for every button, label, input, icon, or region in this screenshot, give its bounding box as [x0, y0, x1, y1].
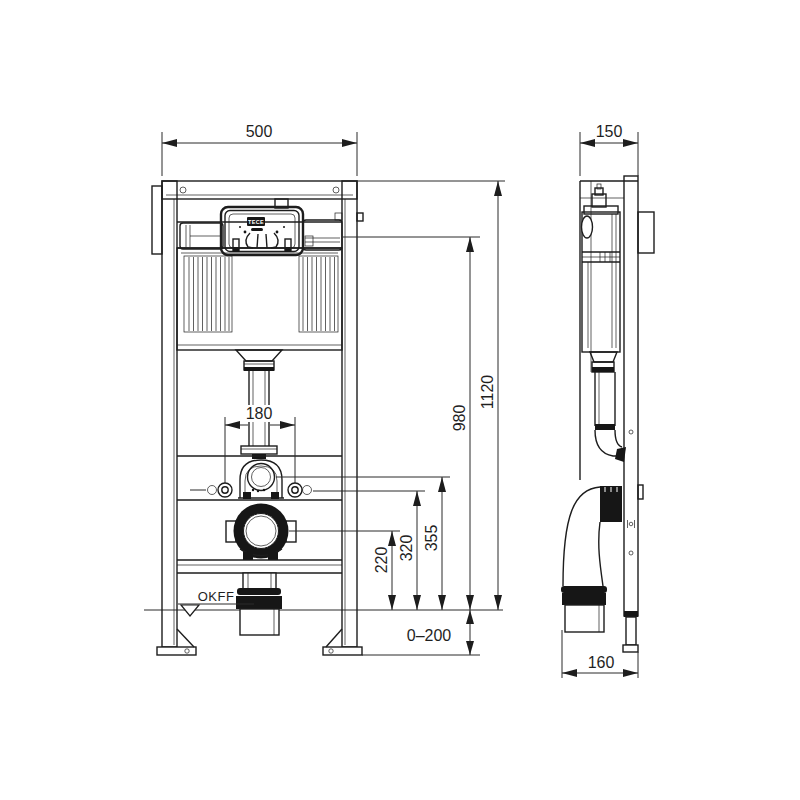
floor-level-label: OKFF	[198, 589, 235, 604]
seal-band	[236, 596, 282, 609]
detail-dot	[283, 226, 285, 228]
front-dimensions: 500 1120 980 355	[162, 123, 505, 655]
dim-label-1120: 1120	[479, 375, 496, 410]
pipe-clamp	[638, 485, 643, 499]
dim-bolt-spacing: 180	[225, 405, 295, 483]
cistern-tank	[177, 248, 342, 350]
brand-logo-text: TECE	[248, 219, 264, 225]
dim-flush-bend-height: 355	[276, 477, 450, 610]
detail-dot	[276, 231, 279, 234]
seal-flange	[237, 588, 281, 595]
drain-connection	[226, 504, 296, 561]
detail-dot	[239, 226, 241, 228]
left-wall-bracket	[152, 186, 162, 254]
rib-hatching-left	[189, 257, 229, 331]
right-wall-bracket	[357, 213, 363, 221]
cistern-handle	[582, 216, 593, 238]
dim-label-0-200: 0–200	[407, 627, 452, 644]
rail-hole	[629, 551, 633, 555]
seal-band	[562, 593, 606, 605]
side-view	[561, 176, 654, 652]
dim-label-980: 980	[451, 405, 468, 432]
dim-foot-range: 0–200	[407, 610, 474, 655]
rib-hatching-right	[303, 257, 335, 331]
wc-module-drawing: TECE	[0, 0, 800, 800]
screw-hole-right	[333, 187, 339, 193]
dim-label-320: 320	[398, 535, 415, 562]
dim-label-355: 355	[423, 525, 440, 552]
side-cistern	[582, 184, 621, 372]
bolt-left	[218, 483, 232, 497]
dim-label-180: 180	[246, 405, 273, 422]
rail-hole	[629, 522, 633, 526]
bolt-right	[288, 483, 302, 497]
right-lever	[271, 233, 278, 248]
side-rear-rail	[623, 176, 643, 652]
front-view: TECE	[144, 181, 503, 655]
seal-flange	[561, 586, 607, 593]
dim-front-width: 500	[162, 123, 357, 176]
washer-left	[208, 486, 217, 495]
dim-bolt-height: 320	[313, 491, 425, 610]
dim-side-depth: 150	[580, 123, 638, 176]
detail-dot	[244, 231, 247, 234]
bottom-bracket	[177, 560, 342, 573]
dim-label-160: 160	[588, 654, 615, 671]
flush-bend-housing	[238, 460, 284, 499]
dim-label-150: 150	[596, 123, 623, 140]
technical-drawing-page: TECE	[0, 0, 800, 800]
dim-label-220: 220	[373, 547, 390, 574]
frame-top-bar	[162, 181, 357, 199]
dim-label-500: 500	[246, 123, 273, 140]
screw-hole-left	[180, 187, 186, 193]
dim-drain-height: 220	[289, 531, 400, 610]
left-lever	[246, 233, 253, 248]
rail-hole	[629, 430, 633, 434]
washer-right	[303, 486, 312, 495]
side-flush-pipe	[595, 372, 626, 462]
wall-bracket-box	[638, 212, 654, 253]
side-drain-elbow	[561, 486, 622, 632]
